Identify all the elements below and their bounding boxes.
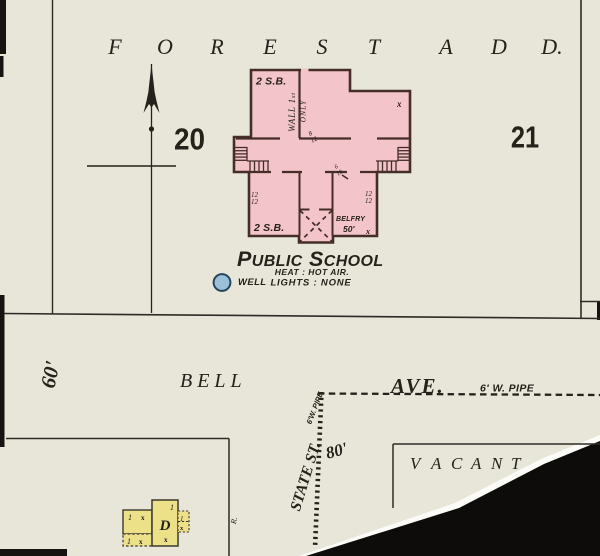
svg-text:1: 1 (127, 537, 131, 546)
svg-text:F: F (107, 34, 122, 59)
svg-text:T: T (368, 34, 382, 59)
svg-text:T: T (511, 454, 522, 473)
svg-text:E: E (262, 34, 277, 59)
svg-text:ONLY: ONLY (299, 100, 308, 123)
svg-text:D: D (159, 518, 171, 534)
svg-text:2 S.B.: 2 S.B. (253, 222, 284, 234)
svg-text:12: 12 (365, 197, 373, 205)
svg-text:S: S (317, 34, 328, 59)
svg-text:WELL: WELL (238, 277, 267, 288)
svg-text:1: 1 (180, 515, 184, 523)
svg-text:1: 1 (128, 513, 132, 522)
svg-text:A: A (437, 34, 453, 59)
svg-text:D.: D. (540, 34, 562, 59)
svg-text:D: D (490, 34, 507, 59)
svg-text:1: 1 (170, 503, 174, 512)
svg-text:R: R (209, 34, 224, 59)
svg-text:x: x (396, 99, 402, 109)
svg-text:x: x (365, 227, 370, 236)
svg-text:R.: R. (229, 516, 239, 525)
svg-text:BELFRY: BELFRY (336, 216, 366, 223)
svg-text:2 S.B.: 2 S.B. (255, 76, 286, 88)
svg-text:C: C (451, 454, 463, 473)
svg-text:6' W. PIPE: 6' W. PIPE (480, 383, 535, 395)
svg-text:BELL: BELL (180, 370, 247, 392)
svg-text:50': 50' (343, 224, 355, 234)
svg-text:x: x (164, 536, 168, 544)
svg-text:O: O (157, 34, 173, 59)
svg-text:x: x (139, 538, 143, 546)
svg-text:12: 12 (251, 198, 259, 206)
svg-text:20: 20 (174, 122, 205, 157)
svg-text:21: 21 (511, 120, 539, 155)
svg-text:HEAT : HOT AIR.: HEAT : HOT AIR. (275, 267, 350, 277)
svg-text:A: A (430, 454, 442, 473)
svg-text:N: N (490, 454, 504, 473)
svg-text:x: x (141, 514, 145, 522)
svg-text:WALL 1st: WALL 1st (287, 92, 297, 132)
svg-text:A: A (470, 454, 482, 473)
svg-text:LIGHTS : NONE: LIGHTS : NONE (270, 278, 351, 289)
